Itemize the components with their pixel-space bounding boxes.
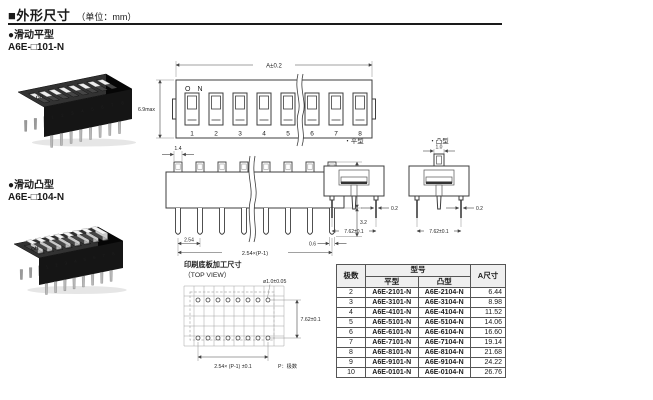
cell-model-flat: A6E-3101-N	[366, 298, 419, 308]
cell-model-raised: A6E-2104-N	[418, 288, 471, 298]
photo-shadow	[32, 139, 136, 147]
cell-model-raised: A6E-9104-N	[418, 358, 471, 368]
switch-slider	[284, 96, 293, 109]
terminal-pin	[198, 208, 203, 234]
cell-model-flat: A6E-0101-N	[366, 368, 419, 378]
raised-type-label: ●滑动凸型	[8, 180, 64, 192]
cell-model-flat: A6E-5101-N	[366, 318, 419, 328]
flat-type-label: ●滑动平型	[8, 30, 64, 42]
model-table-body: 2 A6E-2101-N A6E-2104-N 6.44 3 A6E-3101-…	[337, 288, 506, 378]
mounting-hole	[216, 298, 220, 302]
col-header-poles: 极数	[337, 265, 366, 288]
mounting-hole	[206, 298, 210, 302]
cell-poles: 8	[337, 348, 366, 358]
switch-position-number: 4	[262, 131, 266, 138]
cell-poles: 4	[337, 308, 366, 318]
flat-type-heading: ●滑动平型 A6E-□101-N	[8, 30, 64, 53]
mounting-hole	[266, 298, 270, 302]
pin-front-row	[64, 280, 67, 291]
dim-row-spacing: 7.62±0.1	[429, 229, 449, 235]
switch-position-number: 1	[190, 131, 194, 138]
switch-position-number: 2	[214, 131, 218, 138]
cell-model-flat: A6E-4101-N	[366, 308, 419, 318]
pin-front-row	[110, 270, 113, 281]
col-header-a-dim: A尺寸	[471, 265, 506, 288]
mounting-hole	[216, 336, 220, 340]
cell-poles: 3	[337, 298, 366, 308]
side-tab-right	[372, 99, 376, 119]
standoff	[415, 196, 419, 200]
cell-poles: 9	[337, 358, 366, 368]
dim-overall: 2.54×(P-1)	[242, 251, 268, 257]
mounting-hole	[196, 298, 200, 302]
cell-model-flat: A6E-2101-N	[366, 288, 419, 298]
dim-pitch: 2.54× (P-1) ±0.1	[214, 364, 252, 370]
center-terminal	[352, 196, 356, 209]
dim-body-width: A±0.2	[266, 64, 282, 70]
model-table-row: 5 A6E-5101-N A6E-5104-N 14.06	[337, 318, 506, 328]
mounting-hole	[226, 298, 230, 302]
photo-flat-switch: ON12345678	[6, 56, 138, 154]
model-table-row: 4 A6E-4101-N A6E-4104-N 11.52	[337, 308, 506, 318]
terminal-pin	[264, 208, 269, 234]
terminal-pin	[176, 208, 181, 234]
switch-slider	[308, 96, 317, 109]
model-table-row: 8 A6E-8101-N A6E-8104-N 21.68	[337, 348, 506, 358]
switch-slider	[332, 96, 341, 109]
pin-back-row	[34, 118, 37, 129]
cell-a-dim: 21.68	[471, 348, 506, 358]
photo-raised-switch: ON12345678	[4, 204, 132, 298]
model-table-row: 2 A6E-2101-N A6E-2104-N 6.44	[337, 288, 506, 298]
terminal-pin	[308, 208, 313, 234]
col-header-flat: 平型	[366, 276, 419, 288]
cell-model-raised: A6E-7104-N	[418, 338, 471, 348]
dim-hole-diameter: ø1.0±0.05	[263, 279, 286, 285]
cell-model-raised: A6E-5104-N	[418, 318, 471, 328]
dim-actuator-width: 1.0	[436, 145, 443, 151]
pin-front-row	[80, 130, 83, 142]
model-table-row: 6 A6E-6101-N A6E-6104-N 16.60	[337, 328, 506, 338]
pcb-view-drawing: 印刷底板加工尺寸 （TOP VIEW） ø1.0±0.05 7.62±0.1 2…	[170, 258, 335, 376]
pin-front-row	[101, 272, 104, 283]
model-table: 极数 型号 A尺寸 平型 凸型 2 A6E-2101-N A6E-2104-N …	[336, 264, 506, 378]
mounting-hole	[246, 336, 250, 340]
pin-back-row	[20, 270, 23, 280]
cell-a-dim: 16.60	[471, 328, 506, 338]
cell-a-dim: 14.06	[471, 318, 506, 328]
cell-model-raised: A6E-6104-N	[418, 328, 471, 338]
pin-back-row	[29, 268, 32, 278]
cell-poles: 10	[337, 368, 366, 378]
cell-model-raised: A6E-4104-N	[418, 308, 471, 318]
raised-type-heading: ●滑动凸型 A6E-□104-N	[8, 180, 64, 203]
switch-slider	[188, 96, 197, 109]
se-actuators	[174, 162, 336, 172]
stem	[436, 185, 442, 196]
mounting-hole	[226, 336, 230, 340]
pin-front-row	[50, 135, 53, 147]
pin-front-row	[82, 276, 85, 287]
datasheet-page: ■外形尺寸 （单位：mm） ●滑动平型 A6E-□101-N ON1234567…	[0, 0, 653, 400]
cell-poles: 5	[337, 318, 366, 328]
center-terminal	[437, 196, 441, 209]
terminal-pin	[242, 208, 247, 234]
model-table-header: 极数 型号 A尺寸 平型 凸型	[337, 265, 506, 288]
standoff	[459, 196, 463, 200]
pin-front-row	[60, 133, 63, 145]
raised-side-view: 1.0 0.2 7.62±0.1	[409, 145, 483, 236]
pin-front-row	[118, 122, 121, 134]
raised-actuator	[218, 162, 226, 172]
mounting-hole	[206, 336, 210, 340]
mounting-hole	[236, 298, 240, 302]
cell-a-dim: 24.22	[471, 358, 506, 368]
model-table-row: 7 A6E-7101-N A6E-7104-N 19.14	[337, 338, 506, 348]
mounting-hole	[266, 336, 270, 340]
cell-model-raised: A6E-3104-N	[418, 298, 471, 308]
model-table-row: 3 A6E-3101-N A6E-3104-N 8.98	[337, 298, 506, 308]
switch-slider	[236, 96, 245, 109]
switch-position-number: 6	[310, 131, 314, 138]
raised-type-model: A6E-□104-N	[8, 192, 64, 204]
raised-actuator	[196, 162, 204, 172]
pin-front-row	[109, 124, 112, 136]
unit-note: （单位：mm）	[76, 10, 136, 23]
switch-position-number: 5	[286, 131, 290, 138]
model-table-row: 10 A6E-0101-N A6E-0104-N 26.76	[337, 368, 506, 378]
mounting-hole	[256, 336, 260, 340]
on-label: ON	[185, 86, 210, 93]
dim-actuator-width: 1.4	[174, 146, 181, 152]
model-table-row: 9 A6E-9101-N A6E-9104-N 24.22	[337, 358, 506, 368]
raised-actuator	[174, 162, 182, 172]
mounting-hole	[236, 336, 240, 340]
cell-model-flat: A6E-6101-N	[366, 328, 419, 338]
pin-front-row	[89, 128, 92, 140]
switch-position-number: 3	[238, 131, 242, 138]
dim-row-spacing: 7.62±0.1	[301, 317, 321, 323]
col-header-model: 型号	[366, 265, 471, 277]
side-tab-left	[173, 99, 177, 119]
cell-a-dim: 11.52	[471, 308, 506, 318]
raised-actuator	[240, 162, 248, 172]
switch-slider	[212, 96, 221, 109]
terminal-pin	[220, 208, 225, 234]
pin-front-row	[70, 132, 73, 144]
pin-front-row	[45, 284, 48, 295]
pin-front-row	[99, 126, 102, 138]
standoff	[330, 196, 334, 200]
pin-front-row	[73, 278, 76, 289]
stem	[351, 185, 357, 196]
slider-contact	[426, 182, 452, 185]
cell-a-dim: 8.98	[471, 298, 506, 308]
flat-view-label: ・平型	[344, 136, 364, 145]
mounting-hole	[196, 336, 200, 340]
slider-contact	[341, 182, 367, 185]
side-views-drawing: ・平型 ・凸型 0.2 7.62±0.1	[316, 136, 491, 251]
cell-poles: 6	[337, 328, 366, 338]
page-title: ■外形尺寸	[8, 5, 70, 24]
mounting-hole	[256, 298, 260, 302]
cell-a-dim: 26.76	[471, 368, 506, 378]
cell-model-flat: A6E-8101-N	[366, 348, 419, 358]
dim-lead-thickness: 0.2	[391, 206, 398, 212]
flat-type-model: A6E-□101-N	[8, 42, 64, 54]
actuator-detail	[437, 156, 442, 164]
dim-lead-thickness: 0.2	[476, 206, 483, 212]
cell-a-dim: 6.44	[471, 288, 506, 298]
flat-side-view: 0.2 7.62±0.1	[324, 166, 398, 235]
pcb-title: 印刷底板加工尺寸	[184, 260, 242, 269]
pcb-subtitle: （TOP VIEW）	[184, 271, 231, 279]
dim-body-height: 6.9max	[138, 107, 155, 113]
pcb-holes	[196, 298, 270, 340]
cell-model-flat: A6E-7101-N	[366, 338, 419, 348]
switch-slider	[356, 96, 365, 109]
terminal-pin	[286, 208, 291, 234]
raised-actuator	[306, 162, 314, 172]
cell-poles: 2	[337, 288, 366, 298]
poles-note: P：极数	[278, 362, 298, 370]
pin-front-row	[54, 282, 57, 293]
cell-model-raised: A6E-8104-N	[418, 348, 471, 358]
page-header: ■外形尺寸 （单位：mm）	[8, 5, 136, 24]
photo-shadow	[27, 286, 126, 294]
cell-model-flat: A6E-9101-N	[366, 358, 419, 368]
raised-actuator	[284, 162, 292, 172]
dim-pitch: 2.54	[184, 238, 194, 244]
dim-row-spacing: 7.62±0.1	[344, 229, 364, 235]
standoff	[374, 196, 378, 200]
front-view-drawing: A±0.2 6.9max ON 12345678	[136, 54, 388, 149]
pin-front-row	[91, 274, 94, 285]
title-rule	[8, 23, 502, 25]
col-header-raised: 凸型	[418, 276, 471, 288]
cell-model-raised: A6E-0104-N	[418, 368, 471, 378]
pin-back-row	[24, 120, 27, 131]
mounting-hole	[246, 298, 250, 302]
raised-actuator	[262, 162, 270, 172]
cell-poles: 7	[337, 338, 366, 348]
cell-a-dim: 19.14	[471, 338, 506, 348]
switch-slider	[260, 96, 269, 109]
